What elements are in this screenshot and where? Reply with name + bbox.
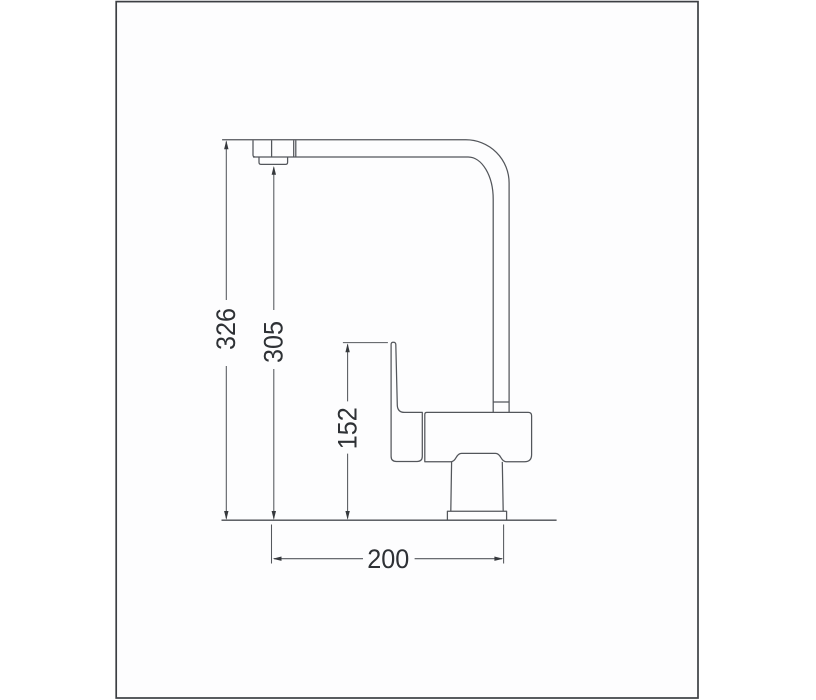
svg-text:152: 152 bbox=[333, 407, 363, 449]
svg-text:305: 305 bbox=[259, 321, 289, 363]
svg-text:200: 200 bbox=[367, 544, 409, 574]
svg-text:326: 326 bbox=[211, 308, 241, 350]
